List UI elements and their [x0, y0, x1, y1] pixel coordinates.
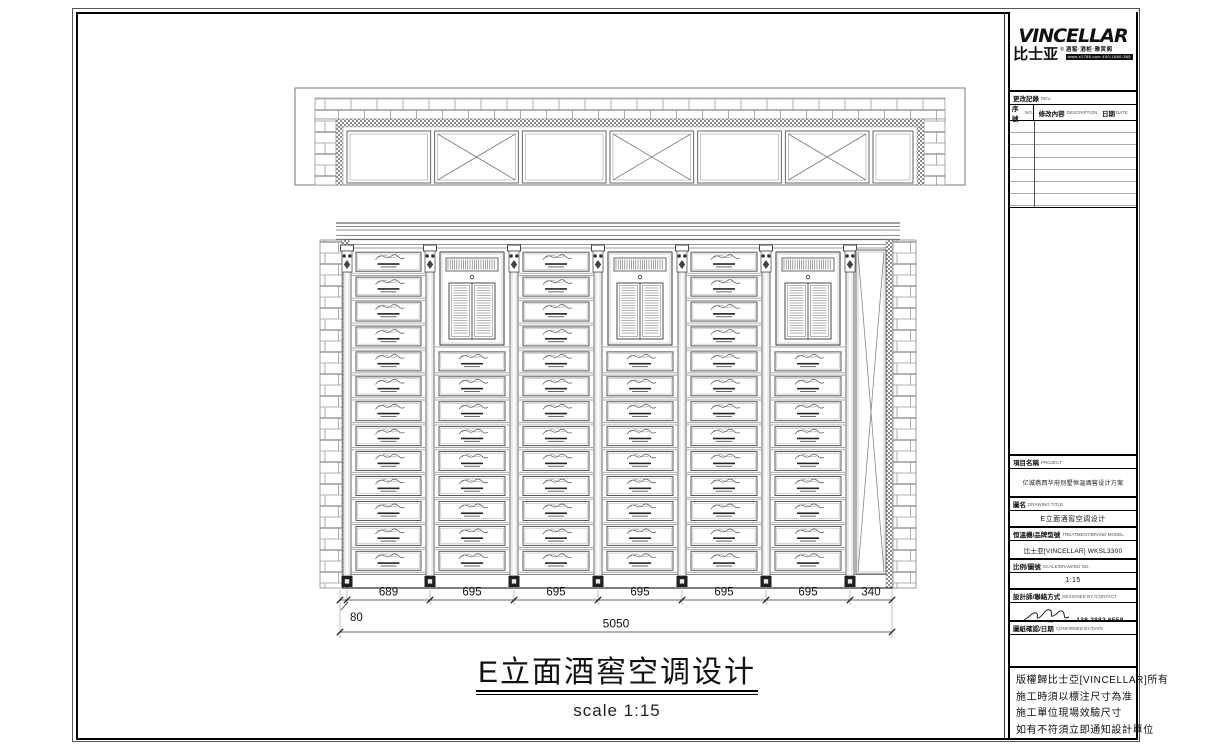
rack-panel — [356, 352, 421, 371]
ceiling-panel — [522, 131, 606, 183]
rack-panel — [356, 477, 421, 496]
rack-panel — [691, 352, 757, 371]
revision-col-no: 序號 NO. — [1010, 105, 1034, 120]
label-bar — [548, 391, 564, 392]
caption-underline — [476, 690, 758, 692]
designer-signature-icon — [1022, 604, 1074, 624]
pilaster-capital — [844, 245, 857, 251]
designer-label: 設計師/聯絡方式 — [1013, 591, 1060, 601]
rack-panel — [356, 377, 421, 396]
section-drawing-title: 圖名 DRAWING TITLE E立面酒窖空调设计 — [1010, 498, 1136, 528]
label-bar — [713, 463, 735, 465]
label-bar — [629, 537, 651, 539]
revision-col-description: 修改內容 DESCRIPTION — [1034, 105, 1102, 120]
rack-panel — [356, 277, 421, 296]
revision-label-zh: 更改記錄 — [1013, 93, 1039, 103]
revision-section-label: 更改記錄 REV. — [1010, 92, 1136, 105]
rack-panel — [439, 551, 505, 570]
brand-cn-name: 比士亚 — [1013, 47, 1058, 62]
pilaster-capital — [424, 245, 437, 251]
rack-panel — [523, 302, 589, 321]
label-bar — [545, 537, 567, 539]
note-line: 施工時須以標注尺寸為准 — [1016, 690, 1130, 707]
label-bar — [464, 516, 480, 517]
label-bar — [716, 491, 732, 492]
revision-empty-row — [1010, 182, 1136, 194]
scale-label: 比例/圖號 — [1013, 561, 1041, 571]
pilaster-capital — [341, 245, 354, 251]
pilaster-shaft — [846, 272, 854, 576]
label-bar — [381, 416, 397, 417]
scale-caption: scale 1:15 — [397, 701, 837, 721]
top-strip-brick-left — [315, 119, 336, 185]
label-bar — [381, 291, 397, 292]
ceiling-panel — [347, 131, 431, 183]
label-bar — [713, 562, 735, 564]
label-bar — [545, 463, 567, 465]
rack-panel — [523, 477, 589, 496]
label-bar — [545, 338, 567, 340]
rack-panel — [523, 377, 589, 396]
rack-panel — [775, 377, 841, 396]
registered-mark-icon: ® — [1060, 47, 1064, 53]
label-bar — [716, 291, 732, 292]
label-bar — [797, 388, 819, 390]
label-bar — [378, 263, 400, 265]
label-bar — [800, 441, 816, 442]
dim-label: 695 — [546, 587, 565, 599]
label-bar — [378, 363, 400, 365]
copyright-notes: 版權歸比士亞[VINCELLAR]所有施工時須以標注尺寸為准施工單位現場效驗尺寸… — [1010, 668, 1136, 738]
rack-panel — [607, 526, 673, 545]
label-bar — [800, 416, 816, 417]
label-bar — [548, 516, 564, 517]
pilaster-shaft — [426, 272, 434, 576]
rack-bay — [519, 252, 593, 574]
label-bar — [378, 288, 400, 290]
note-line: 版權歸比士亞[VINCELLAR]所有 — [1016, 673, 1130, 690]
rack-panel — [356, 501, 421, 520]
title-block: VINCELLAR 比士亚 ® 酒窖·酒柜·雅赏阁 www.x1788.com … — [1004, 12, 1136, 738]
label-bar — [797, 512, 819, 514]
brand-wordmark: VINCELLAR — [1010, 26, 1136, 46]
section-confirm: 圖紙確認/日期 CONFIRMED BY/DATE — [1010, 622, 1136, 668]
dim-label-total: 5050 — [603, 617, 630, 631]
rack-panel — [775, 526, 841, 545]
revision-empty-row — [1010, 194, 1136, 206]
label-bar — [713, 438, 735, 440]
label-bar — [378, 512, 400, 514]
rack-bay — [771, 252, 845, 574]
label-bar — [713, 313, 735, 315]
label-bar — [800, 516, 816, 517]
rack-panel — [356, 402, 421, 421]
label-bar — [545, 363, 567, 365]
label-bar — [797, 463, 819, 465]
rack-panel — [356, 427, 421, 446]
rack-panel — [691, 501, 757, 520]
dim-label: 695 — [630, 587, 649, 599]
rack-panel — [356, 327, 421, 346]
label-bar — [629, 488, 651, 490]
label-bar — [461, 537, 483, 539]
label-bar — [548, 565, 564, 566]
label-bar — [548, 491, 564, 492]
label-bar — [378, 537, 400, 539]
dim-label-offset: 80 — [350, 612, 363, 624]
rack-panel — [523, 402, 589, 421]
rack-panel — [691, 327, 757, 346]
label-bar — [548, 266, 564, 267]
label-bar — [800, 366, 816, 367]
revision-label-en: REV. — [1041, 96, 1051, 101]
label-bar — [545, 438, 567, 440]
label-bar — [629, 413, 651, 415]
rack-panel — [775, 352, 841, 371]
label-bar — [381, 366, 397, 367]
pilaster-capital — [508, 245, 521, 251]
label-bar — [461, 413, 483, 415]
label-bar — [716, 541, 732, 542]
rack-panel — [607, 427, 673, 446]
rack-panel — [439, 501, 505, 520]
label-bar — [464, 391, 480, 392]
rack-panel — [523, 352, 589, 371]
rack-panel — [691, 377, 757, 396]
confirm-value — [1010, 635, 1136, 666]
label-bar — [632, 466, 648, 467]
label-bar — [797, 537, 819, 539]
rack-panel — [439, 526, 505, 545]
label-bar — [461, 463, 483, 465]
label-bar — [716, 466, 732, 467]
project-label: 項目名稱 — [1013, 457, 1039, 467]
label-bar — [548, 341, 564, 342]
label-bar — [381, 516, 397, 517]
rack-panel — [607, 352, 673, 371]
label-bar — [378, 463, 400, 465]
label-bar — [464, 366, 480, 367]
label-bar — [800, 565, 816, 566]
label-bar — [378, 388, 400, 390]
rack-panel — [691, 551, 757, 570]
top-strip-insulation-left — [336, 127, 343, 185]
pilaster-capital — [592, 245, 605, 251]
revision-empty-row — [1010, 145, 1136, 157]
label-bar — [632, 565, 648, 566]
rack-panel — [775, 452, 841, 471]
caption-underline-thin — [476, 694, 758, 695]
rack-panel — [691, 452, 757, 471]
rack-panel — [691, 302, 757, 321]
label-bar — [716, 266, 732, 267]
note-line: 如有不符須立即通知設計單位 — [1016, 723, 1130, 740]
label-bar — [545, 388, 567, 390]
ceiling-panel — [698, 131, 782, 183]
pilaster-capital — [676, 245, 689, 251]
label-bar — [381, 565, 397, 566]
rack-panel — [523, 427, 589, 446]
label-bar — [632, 541, 648, 542]
pilaster-shaft — [762, 272, 770, 576]
cad-sheet: 689695695695695695340805050 VINCELLAR 比士… — [0, 0, 1210, 750]
note-line: 施工單位現場效驗尺寸 — [1016, 706, 1130, 723]
rack-panel — [439, 477, 505, 496]
rack-bay — [603, 252, 677, 574]
label-bar — [464, 491, 480, 492]
rack-panel — [439, 377, 505, 396]
label-bar — [716, 565, 732, 566]
rack-panel — [607, 377, 673, 396]
label-bar — [800, 391, 816, 392]
label-bar — [464, 565, 480, 566]
label-bar — [381, 441, 397, 442]
label-bar — [461, 438, 483, 440]
top-strip-insulation-right — [917, 127, 924, 185]
rack-panel — [775, 551, 841, 570]
label-bar — [713, 488, 735, 490]
label-bar — [632, 416, 648, 417]
section-project: 項目名稱 PROJECT 亿城燕西华府别墅恒温酒窖设计方案 — [1010, 456, 1136, 498]
rack-panel — [691, 402, 757, 421]
pilaster-shaft — [678, 272, 686, 576]
rack-panel — [691, 427, 757, 446]
label-bar — [629, 363, 651, 365]
rack-panel — [523, 551, 589, 570]
label-bar — [381, 391, 397, 392]
label-bar — [545, 263, 567, 265]
rack-panel — [439, 402, 505, 421]
left-brick-wall — [320, 240, 342, 588]
label-bar — [713, 263, 735, 265]
label-bar — [716, 316, 732, 317]
rack-panel — [691, 252, 757, 271]
top-strip — [295, 88, 965, 185]
scale-value: 1:15 — [1010, 573, 1136, 588]
ceiling-panel — [873, 131, 913, 183]
equipment-value: 比士亚[VINCELLAR] WKSL3300 — [1010, 541, 1136, 558]
label-bar — [629, 463, 651, 465]
label-bar — [548, 416, 564, 417]
label-bar — [632, 366, 648, 367]
label-bar — [632, 391, 648, 392]
label-bar — [629, 438, 651, 440]
rack-panel — [523, 452, 589, 471]
right-insulation-strip — [886, 240, 893, 588]
label-bar — [548, 316, 564, 317]
title-block-spacer — [1010, 208, 1136, 456]
dim-label: 695 — [714, 587, 733, 599]
rack-panel — [775, 427, 841, 446]
rack-panel — [691, 277, 757, 296]
dim-label: 695 — [798, 587, 817, 599]
label-bar — [716, 441, 732, 442]
dim-label: 689 — [379, 587, 398, 599]
equipment-label: 恒溫機/品牌型號 — [1013, 529, 1060, 539]
rack-panel — [607, 402, 673, 421]
confirm-label: 圖紙確認/日期 — [1013, 623, 1054, 633]
rack-panel — [691, 477, 757, 496]
label-bar — [461, 562, 483, 564]
label-bar — [461, 363, 483, 365]
label-bar — [548, 291, 564, 292]
label-bar — [713, 388, 735, 390]
drawing-caption: E立面酒窖空调设计 — [397, 647, 837, 691]
label-bar — [545, 313, 567, 315]
label-bar — [800, 491, 816, 492]
rack-panel — [691, 526, 757, 545]
rack-panel — [356, 526, 421, 545]
rack-panel — [523, 277, 589, 296]
right-brick-wall — [893, 240, 916, 588]
label-bar — [713, 338, 735, 340]
rack-panel — [439, 352, 505, 371]
revision-col-date: 日期 DATE — [1102, 105, 1136, 120]
revision-empty-row — [1010, 121, 1136, 133]
revision-empty-rows — [1010, 121, 1136, 208]
rack-panel — [356, 551, 421, 570]
top-strip-insulation-top — [336, 119, 924, 127]
label-bar — [797, 488, 819, 490]
brand-logo: VINCELLAR 比士亚 ® 酒窖·酒柜·雅赏阁 www.x1788.com … — [1010, 12, 1136, 92]
label-bar — [545, 512, 567, 514]
label-bar — [800, 541, 816, 542]
pilaster-capital — [760, 245, 773, 251]
rack-panel — [607, 452, 673, 471]
rack-panel — [523, 501, 589, 520]
label-bar — [378, 338, 400, 340]
label-bar — [464, 416, 480, 417]
label-bar — [378, 313, 400, 315]
label-bar — [464, 466, 480, 467]
label-bar — [797, 413, 819, 415]
label-bar — [381, 491, 397, 492]
pilaster-shaft — [510, 272, 518, 576]
label-bar — [545, 488, 567, 490]
top-strip-brick-top — [315, 98, 945, 119]
brand-website: www.x1788.com 400-1860-365 — [1066, 54, 1133, 60]
rack-panel — [607, 551, 673, 570]
drawing-title-value: E立面酒窖空调设计 — [1010, 511, 1136, 526]
label-bar — [461, 488, 483, 490]
section-designer: 設計師/聯絡方式 DESIGNED BY /CONTACT 138 2882 6… — [1010, 590, 1136, 622]
label-bar — [461, 388, 483, 390]
revision-empty-row — [1010, 158, 1136, 170]
dim-label: 695 — [462, 587, 481, 599]
rack-panel — [356, 252, 421, 271]
rack-panel — [439, 427, 505, 446]
label-bar — [378, 438, 400, 440]
label-bar — [548, 441, 564, 442]
top-strip-brick-right — [924, 119, 945, 185]
rack-panel — [356, 452, 421, 471]
label-bar — [797, 363, 819, 365]
label-bar — [713, 512, 735, 514]
rack-panel — [523, 526, 589, 545]
main-elevation — [320, 223, 916, 588]
revision-table-header: 序號 NO. 修改內容 DESCRIPTION 日期 DATE — [1010, 105, 1136, 121]
label-bar — [464, 441, 480, 442]
label-bar — [716, 366, 732, 367]
rack-bay — [687, 252, 761, 574]
rack-panel — [439, 452, 505, 471]
label-bar — [797, 562, 819, 564]
dim-label: 340 — [861, 587, 880, 599]
revision-empty-row — [1010, 170, 1136, 182]
label-bar — [716, 341, 732, 342]
rack-panel — [607, 477, 673, 496]
label-bar — [378, 488, 400, 490]
label-bar — [629, 512, 651, 514]
label-bar — [548, 466, 564, 467]
label-bar — [716, 516, 732, 517]
rack-bay — [352, 252, 425, 574]
label-bar — [713, 413, 735, 415]
label-bar — [713, 288, 735, 290]
label-bar — [545, 562, 567, 564]
label-bar — [797, 438, 819, 440]
label-bar — [381, 341, 397, 342]
label-bar — [381, 266, 397, 267]
rack-panel — [775, 402, 841, 421]
label-bar — [632, 516, 648, 517]
label-bar — [548, 366, 564, 367]
section-equipment: 恒溫機/品牌型號 TREATMENT/BRAND MODEL 比士亚[VINCE… — [1010, 528, 1136, 560]
label-bar — [378, 413, 400, 415]
label-bar — [629, 562, 651, 564]
label-bar — [464, 541, 480, 542]
label-bar — [632, 491, 648, 492]
label-bar — [713, 363, 735, 365]
rack-panel — [775, 501, 841, 520]
drawing-title-label: 圖名 — [1013, 499, 1026, 509]
label-bar — [716, 391, 732, 392]
rack-bay — [435, 252, 509, 574]
label-bar — [548, 541, 564, 542]
rack-panel — [607, 501, 673, 520]
pilaster-shaft — [343, 272, 351, 576]
section-scale: 比例/圖號 SCALE/DRAWING NO. 1:15 — [1010, 560, 1136, 590]
label-bar — [800, 466, 816, 467]
label-bar — [632, 441, 648, 442]
label-bar — [381, 541, 397, 542]
label-bar — [378, 562, 400, 564]
rack-panel — [523, 252, 589, 271]
label-bar — [545, 413, 567, 415]
label-bar — [716, 416, 732, 417]
rack-panel — [775, 477, 841, 496]
label-bar — [381, 316, 397, 317]
project-value: 亿城燕西华府别墅恒温酒窖设计方案 — [1010, 469, 1136, 496]
pilaster-shaft — [594, 272, 602, 576]
rack-panel — [523, 327, 589, 346]
label-bar — [629, 388, 651, 390]
brand-tagline: 酒窖·酒柜·雅赏阁 — [1066, 47, 1113, 54]
rack-panel — [356, 302, 421, 321]
revision-empty-row — [1010, 133, 1136, 145]
label-bar — [381, 466, 397, 467]
label-bar — [545, 288, 567, 290]
label-bar — [713, 537, 735, 539]
label-bar — [461, 512, 483, 514]
